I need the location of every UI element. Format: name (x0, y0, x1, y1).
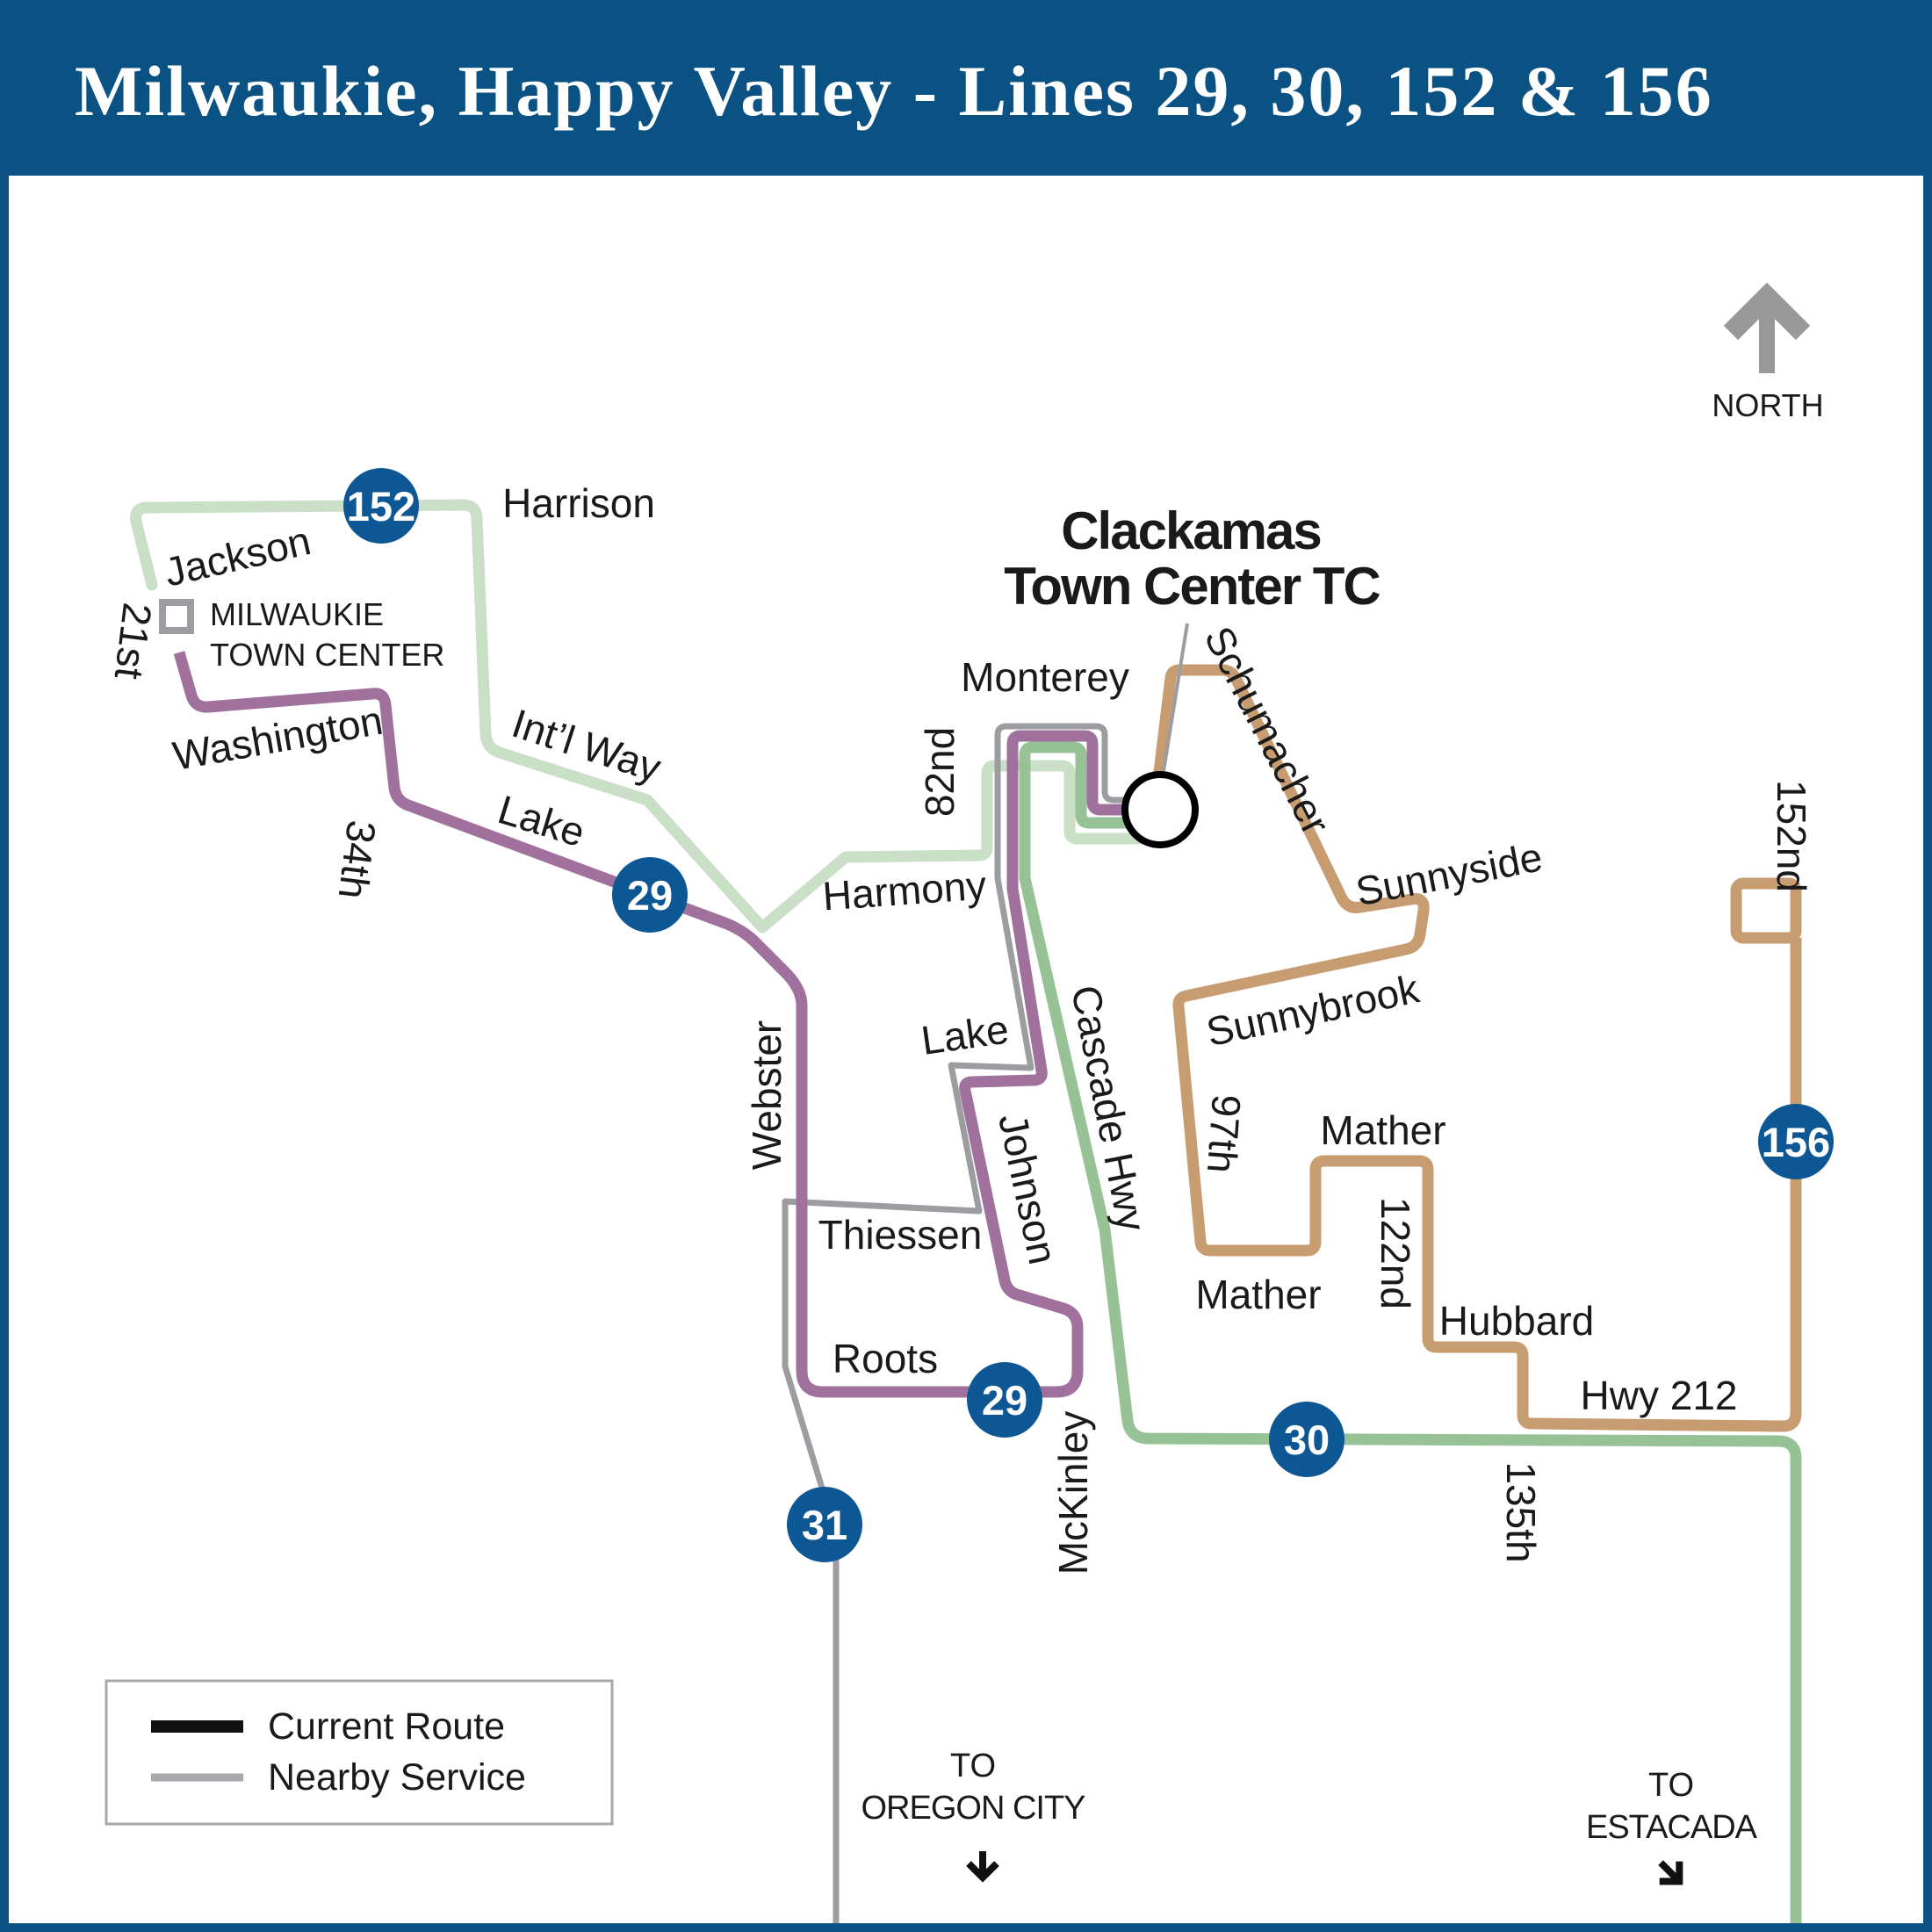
svg-text:NORTH: NORTH (1712, 387, 1823, 423)
svg-text:Clackamas: Clackamas (1061, 501, 1321, 560)
svg-text:82nd: 82nd (917, 727, 962, 817)
svg-text:Mather: Mather (1195, 1272, 1321, 1317)
svg-text:Thiessen: Thiessen (818, 1212, 983, 1258)
svg-text:TO: TO (1648, 1767, 1694, 1804)
svg-text:Milwaukie, Happy Valley - Line: Milwaukie, Happy Valley - Lines 29, 30, … (75, 51, 1713, 131)
svg-text:Current Route: Current Route (268, 1705, 505, 1748)
svg-text:Monterey: Monterey (961, 654, 1129, 700)
svg-text:30: 30 (1284, 1417, 1330, 1463)
svg-text:Mather: Mather (1320, 1107, 1445, 1153)
svg-text:29: 29 (982, 1377, 1027, 1424)
svg-text:Webster: Webster (744, 1020, 789, 1170)
svg-text:97th: 97th (1199, 1093, 1250, 1175)
svg-text:Nearby Service: Nearby Service (268, 1756, 526, 1799)
svg-text:OREGON CITY: OREGON CITY (861, 1790, 1085, 1827)
svg-text:Roots: Roots (833, 1336, 938, 1381)
svg-text:Town Center TC: Town Center TC (1004, 557, 1380, 616)
svg-text:TOWN CENTER: TOWN CENTER (210, 637, 444, 673)
svg-text:TO: TO (950, 1748, 996, 1784)
svg-text:Harrison: Harrison (502, 480, 655, 526)
svg-text:31: 31 (802, 1502, 847, 1548)
svg-text:122nd: 122nd (1373, 1197, 1418, 1309)
svg-text:Hubbard: Hubbard (1439, 1298, 1594, 1344)
svg-text:156: 156 (1762, 1119, 1830, 1165)
svg-text:29: 29 (627, 872, 673, 919)
svg-text:ESTACADA: ESTACADA (1586, 1809, 1758, 1846)
svg-text:135th: 135th (1498, 1461, 1544, 1562)
svg-text:152: 152 (347, 483, 415, 530)
svg-text:MILWAUKIE: MILWAUKIE (210, 596, 384, 632)
svg-text:Hwy 212: Hwy 212 (1581, 1373, 1738, 1418)
svg-text:34th: 34th (330, 818, 386, 901)
svg-text:21st: 21st (106, 601, 161, 682)
svg-text:152nd: 152nd (1769, 780, 1814, 892)
svg-text:McKinley: McKinley (1050, 1411, 1096, 1575)
